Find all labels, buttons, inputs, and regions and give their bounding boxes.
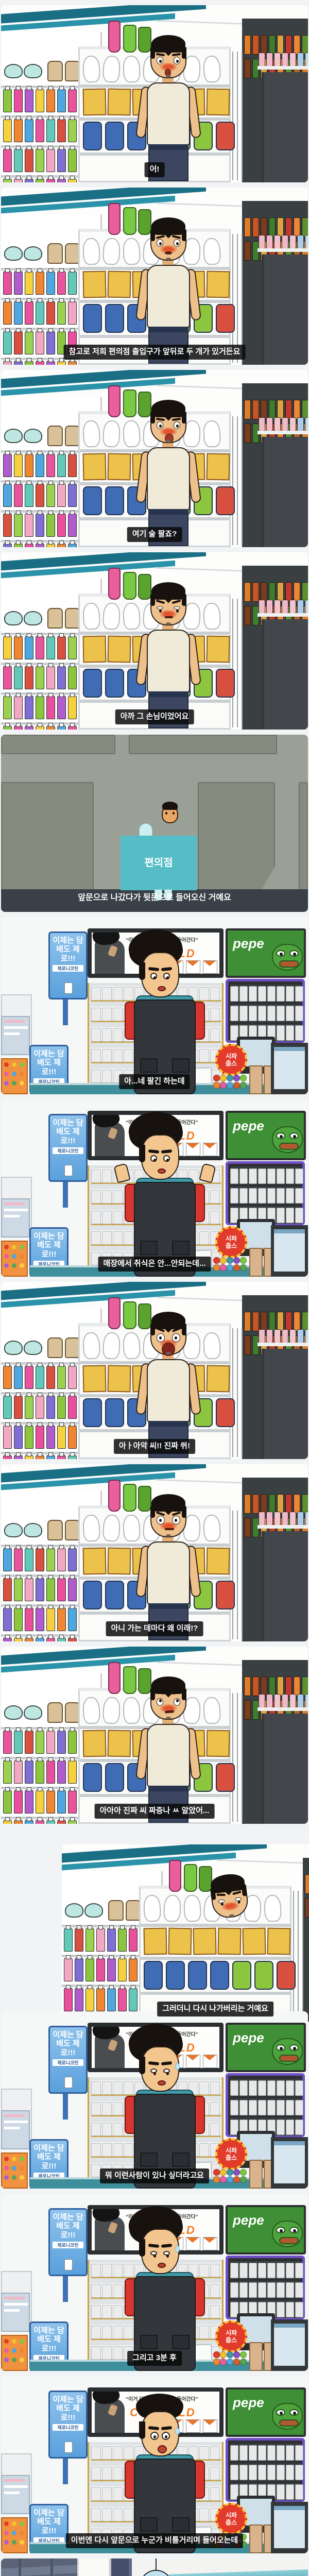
bowl-item	[4, 1523, 23, 1537]
store-clerk	[124, 2027, 206, 2189]
blue-bag	[83, 1398, 102, 1427]
wire-rack	[242, 1328, 243, 1457]
yellow-box	[83, 1365, 107, 1393]
white-bag	[102, 238, 121, 265]
wire-rack	[237, 52, 238, 180]
product-item	[239, 986, 248, 1002]
blue-bag	[83, 669, 102, 698]
face	[150, 1494, 186, 1537]
product-item	[249, 2263, 257, 2278]
eye	[174, 606, 180, 609]
bottle	[68, 89, 77, 112]
orange-bottle	[261, 1676, 267, 1696]
bottle	[36, 1395, 44, 1419]
candy-dot	[20, 1263, 24, 1268]
bottle	[14, 301, 23, 325]
product-item	[295, 2445, 303, 2461]
bag-item	[47, 243, 63, 264]
clerk-face	[141, 952, 179, 997]
product-item	[249, 1188, 257, 1204]
subtitle: 참고로 저희 편의점 출입구가 앞뒤로 두 개가 있거든요	[64, 345, 246, 360]
white-bag	[102, 420, 121, 448]
eye	[150, 1155, 157, 1162]
tank-top	[147, 82, 190, 146]
candy-dot	[20, 2339, 24, 2344]
product-item	[295, 986, 303, 1002]
pink-blue-bottle	[289, 53, 296, 66]
pink-tumbler	[108, 1480, 121, 1512]
product-item	[258, 986, 266, 1002]
pink-blue-bottle	[259, 235, 265, 249]
bottle	[68, 696, 77, 719]
candy-dot	[4, 1062, 9, 1067]
pepe-billboard: pepe	[226, 2387, 306, 2437]
pink-tumbler	[108, 21, 121, 53]
bottle	[57, 1820, 66, 1824]
eyebrow	[217, 1894, 226, 1896]
product-item	[102, 2102, 112, 2115]
eye	[172, 1516, 180, 1524]
product-item	[277, 2445, 285, 2461]
product-item	[91, 1211, 101, 1224]
product-item	[113, 2346, 123, 2360]
candy-dot	[12, 1081, 16, 1086]
bottle	[3, 543, 12, 547]
product-item	[113, 2487, 123, 2501]
candy-dot	[12, 1263, 16, 1268]
white-bag	[203, 238, 221, 265]
candy-dot	[12, 1254, 16, 1259]
product-item	[277, 2120, 285, 2135]
bottle	[85, 1928, 94, 1952]
product-item	[230, 2100, 238, 2115]
white-bag	[102, 1514, 121, 1542]
pink-blue-bottle	[297, 1694, 304, 1708]
pink-blue-bottle	[297, 600, 304, 614]
bottle	[14, 1548, 23, 1571]
mouth	[158, 986, 166, 991]
tank-top	[147, 1541, 190, 1605]
product-item	[295, 2282, 303, 2298]
product-item	[267, 1006, 276, 1021]
bottle-icon	[64, 1165, 73, 1176]
bottle	[3, 89, 12, 112]
bottle	[68, 148, 77, 172]
bottle	[57, 636, 66, 659]
lollipop	[220, 2176, 227, 2183]
eye	[150, 2069, 157, 2073]
eye	[163, 2251, 170, 2256]
lollipop-cluster	[213, 2351, 249, 2371]
orange-bottle	[244, 423, 251, 443]
goatee	[166, 1352, 171, 1354]
bottle	[129, 1958, 138, 1981]
pos-monitor	[271, 1043, 308, 1094]
eyebrow	[148, 2244, 160, 2248]
orange-bottle	[244, 59, 251, 78]
candy-dot	[12, 2521, 16, 2526]
hair	[182, 1324, 186, 1335]
lollipop	[233, 1264, 240, 1271]
wire-rack	[232, 1511, 233, 1639]
product-item	[102, 1028, 112, 1042]
yellow-box	[108, 89, 131, 116]
product-item	[102, 2081, 112, 2095]
orange-bottle	[305, 1898, 309, 1918]
product-item	[102, 2264, 112, 2277]
sideburn	[139, 962, 145, 980]
blue-bag	[105, 304, 124, 333]
bottle	[14, 453, 23, 477]
bottle	[14, 148, 23, 172]
sideburn	[139, 1145, 145, 1162]
product-item	[286, 2263, 294, 2278]
bottle	[46, 543, 55, 547]
subtitle: 아...네 팔긴 하는데	[119, 1074, 190, 1089]
pink-blue-bottle	[289, 235, 296, 249]
bottle	[57, 1365, 66, 1389]
convenience-store-block: 편의점	[121, 836, 197, 890]
goatee	[166, 622, 171, 625]
product-item	[113, 2467, 123, 2480]
mouth	[165, 616, 173, 618]
orange-bottle	[294, 1676, 300, 1696]
pink-tumbler	[169, 1860, 181, 1892]
bottle	[36, 1455, 44, 1459]
bottle	[3, 1730, 12, 1754]
face	[150, 1312, 186, 1355]
lollipop	[233, 2169, 240, 2176]
bottle	[14, 725, 23, 730]
pepe-billboard: pepe	[226, 1111, 306, 1160]
hair	[182, 412, 186, 423]
eye	[157, 606, 163, 609]
bottle	[25, 178, 33, 182]
orange-bottle	[302, 400, 308, 419]
product-item	[277, 2282, 285, 2298]
product-item	[91, 2143, 101, 2157]
mouth	[165, 1528, 174, 1530]
pepe-frog-icon	[272, 1126, 303, 1153]
orange-bottle	[269, 1676, 276, 1696]
product-item	[230, 1006, 238, 1021]
pink-blue-bottle	[305, 53, 308, 66]
bottle	[46, 636, 55, 659]
blue-bag	[144, 1961, 163, 1990]
hair	[182, 1689, 186, 1700]
blue-bag	[83, 486, 102, 515]
product-item	[249, 2465, 257, 2480]
lollipop	[213, 1075, 220, 1081]
blue-bag	[83, 304, 102, 333]
bottle	[46, 483, 55, 507]
product-item	[91, 2123, 101, 2136]
subtitle: 이번엔 다시 앞문으로 누군가 비틀거리며 들어오는데	[66, 2533, 243, 2548]
product-item	[239, 1188, 248, 1204]
bottle	[46, 513, 55, 537]
product-item	[91, 2467, 101, 2480]
product-item	[210, 2487, 220, 2501]
orange-bottle	[252, 400, 259, 419]
bottle	[46, 1425, 55, 1449]
top-right-bottle-row	[259, 235, 308, 248]
bottle	[85, 1988, 94, 2011]
lollipop	[220, 2351, 227, 2358]
product-item	[102, 2143, 112, 2157]
bottle	[14, 1637, 23, 1641]
pepe-frog-icon	[272, 2221, 303, 2247]
belt	[148, 327, 188, 332]
eye	[174, 239, 180, 247]
candy-dot	[4, 2348, 9, 2353]
zero-nicotine-sign: 이제는 담배도 제로!!! 제로니코틴	[48, 1114, 88, 1182]
yellow-box	[207, 271, 230, 298]
purple-cigarette-shelf	[226, 1161, 305, 1225]
pink-blue-bottle	[282, 1694, 288, 1708]
bottle	[57, 118, 66, 142]
bottle	[14, 696, 23, 719]
product-item	[286, 2445, 294, 2461]
pepe-logo: pepe	[233, 2212, 264, 2228]
candy-dot	[4, 2531, 9, 2535]
product-item	[258, 2080, 266, 2096]
blue-bag	[105, 1581, 124, 1609]
bottle	[46, 1790, 55, 1814]
bottle	[85, 1958, 94, 1981]
pink-blue-bottle	[282, 600, 288, 614]
ceiling-lamp-icon	[140, 2570, 172, 2576]
bottle	[25, 1578, 33, 1601]
bottle	[46, 331, 55, 354]
product-item	[91, 2102, 101, 2115]
cigarette-row	[230, 1187, 301, 1204]
store-label: 편의점	[121, 854, 197, 869]
comic-panel-7: 이제는 담배도 제로!!! 제로니코틴 이제는 담배도 제로!!! 제로니코틴 …	[1, 1099, 308, 1277]
orange-bottle	[305, 1874, 309, 1894]
lollipop	[220, 1264, 227, 1271]
bottle	[107, 1958, 116, 1981]
subtitle: 뭐 이런사람이 있나 싶더라고요	[100, 2168, 209, 2183]
yellow-box	[108, 1548, 131, 1575]
lollipop-badge: 시파 춥스	[215, 1226, 247, 1258]
yellow-box	[83, 1548, 107, 1575]
bottle	[57, 1548, 66, 1571]
bottle	[25, 1760, 33, 1784]
pink-blue-bottle	[289, 1694, 296, 1708]
wire-rack	[232, 416, 233, 545]
product-item	[102, 2305, 112, 2318]
bottle	[25, 1730, 33, 1754]
mouth	[158, 2445, 167, 2453]
lollipop	[240, 1082, 247, 1089]
zero-nicotine-sign: 이제는 담배도 제로!!! 제로니코틴	[48, 2208, 88, 2276]
bottle	[36, 483, 44, 507]
bottle	[68, 725, 77, 730]
bottle	[64, 1958, 73, 1981]
eyebrow	[161, 967, 173, 971]
comic-panel-10: 아아아 진짜 씨 짜증나 ㅆ 알았어...	[1, 1647, 308, 1824]
bottle	[57, 696, 66, 719]
comic-panel-8: 아ㅏ아악 씨!! 진짜 쒸!	[1, 1282, 308, 1459]
product-item	[210, 987, 220, 1001]
white-bag	[102, 1697, 121, 1724]
product-item	[113, 2508, 123, 2521]
comic-panel-15: 시원한데 뜨거운 음료	[1, 2558, 308, 2576]
face	[150, 582, 186, 625]
bottle	[3, 1637, 12, 1641]
product-item	[286, 1168, 294, 1184]
product-item	[230, 1168, 238, 1184]
product-item	[230, 2445, 238, 2461]
bottle	[96, 1928, 105, 1952]
orange-bottle	[252, 217, 259, 237]
bottle	[36, 331, 44, 354]
drunk-customer	[132, 400, 204, 546]
product-item	[113, 1028, 123, 1042]
building-block	[1, 782, 94, 890]
bottle	[46, 666, 55, 689]
eyebrow	[161, 1149, 173, 1154]
dark-fridge	[262, 255, 308, 365]
subtitle: 아ㅏ아악 씨!! 진짜 쒸!	[114, 1439, 195, 1454]
product-item	[286, 2100, 294, 2115]
lollipop	[227, 1257, 233, 1264]
wire-rack	[232, 234, 233, 363]
shelf-board	[257, 431, 308, 434]
bottle	[57, 301, 66, 325]
product-item	[295, 2100, 303, 2115]
bowl-item	[4, 429, 23, 443]
orange-bottle	[244, 1518, 251, 1537]
product-item	[230, 2080, 238, 2096]
hair	[150, 47, 155, 59]
bottle	[3, 1760, 12, 1784]
bottle	[57, 271, 66, 295]
bottle	[36, 1637, 44, 1641]
bottle	[14, 513, 23, 537]
candy-dot	[20, 1245, 24, 1249]
comic-panel-13: 이제는 담배도 제로!!! 제로니코틴 이제는 담배도 제로!!! 제로니코틴 …	[1, 2194, 308, 2371]
bottle	[25, 636, 33, 659]
product-item	[267, 2263, 276, 2278]
candy-sign	[1, 2517, 28, 2553]
bottle	[57, 1395, 66, 1419]
orange-bottle	[302, 1676, 308, 1696]
shelf-board	[257, 1343, 308, 1346]
lollipop	[213, 2169, 220, 2176]
candy-dot	[20, 2531, 24, 2535]
bottle	[57, 543, 66, 547]
bag-item	[47, 426, 63, 446]
bottle	[3, 483, 12, 507]
bottle	[36, 271, 44, 295]
product-item	[102, 2446, 112, 2460]
purple-cigarette-shelf	[226, 2438, 305, 2502]
bottle	[3, 361, 12, 365]
pink-blue-bottle	[289, 1512, 296, 1526]
product-item	[267, 986, 276, 1002]
eye	[157, 1516, 165, 1524]
candy-sign	[1, 1241, 28, 1277]
eye	[162, 2432, 170, 2440]
orange-bottle	[285, 582, 292, 602]
pink-blue-bottle	[274, 235, 281, 249]
lollipop	[233, 1075, 240, 1081]
orange-bottle	[261, 400, 267, 419]
pink-blue-bottle	[305, 1329, 308, 1343]
bottle	[46, 1730, 55, 1754]
product-item	[249, 2080, 257, 2096]
bottle	[75, 1988, 83, 2011]
product-item	[210, 2264, 220, 2277]
face	[150, 217, 186, 261]
bottle	[46, 301, 55, 325]
bottle	[118, 1988, 127, 2011]
pink-tumbler	[108, 568, 121, 600]
yellow-box	[267, 1928, 291, 1955]
product-item	[295, 2120, 303, 2135]
candy-dot	[20, 2166, 24, 2171]
belt	[148, 509, 188, 515]
product-item	[113, 1231, 123, 1245]
sideburn	[139, 2057, 145, 2074]
bottle	[36, 361, 44, 365]
candy-dot	[20, 2358, 24, 2362]
product-item	[295, 1208, 303, 1223]
lollipop	[227, 1264, 233, 1271]
lollipop	[227, 2176, 233, 2183]
wire-rack	[242, 1511, 243, 1639]
product-item	[249, 2100, 257, 2115]
product-item	[210, 2123, 220, 2136]
lollipop	[240, 1264, 247, 1271]
bottle	[14, 331, 23, 354]
lollipop	[213, 2359, 220, 2365]
product-item	[210, 1211, 220, 1224]
bottle	[36, 453, 44, 477]
orange-bottle	[269, 582, 276, 602]
product-item	[267, 2080, 276, 2096]
candy-dot	[20, 2348, 24, 2353]
drunk-customer	[132, 35, 204, 181]
product-item	[258, 2445, 266, 2461]
pos-screen	[1, 1016, 30, 1055]
hair	[150, 595, 155, 606]
bottle	[68, 1425, 77, 1449]
tank-top	[147, 447, 190, 511]
product-item	[286, 1025, 294, 1041]
orange-bottle	[244, 1312, 251, 1331]
orange-bottle	[261, 217, 267, 237]
candy-dot	[4, 1263, 9, 1268]
drunk-customer	[132, 217, 204, 364]
product-item	[91, 2487, 101, 2501]
pink-blue-bottle	[259, 1329, 265, 1343]
bottle	[68, 271, 77, 295]
yellow-box	[207, 1548, 230, 1575]
candy-dot	[4, 1081, 9, 1086]
bowl-item	[65, 1903, 83, 1918]
bottle	[46, 1820, 55, 1824]
product-item	[239, 1168, 248, 1184]
bottle	[68, 178, 77, 182]
top-right-bottle-row	[259, 53, 308, 66]
product-item	[286, 2302, 294, 2317]
orange-bottle	[252, 1494, 259, 1514]
bottle	[68, 1820, 77, 1824]
lollipop-badge: 시파 춥스	[215, 2503, 247, 2535]
bottle	[129, 1988, 138, 2011]
